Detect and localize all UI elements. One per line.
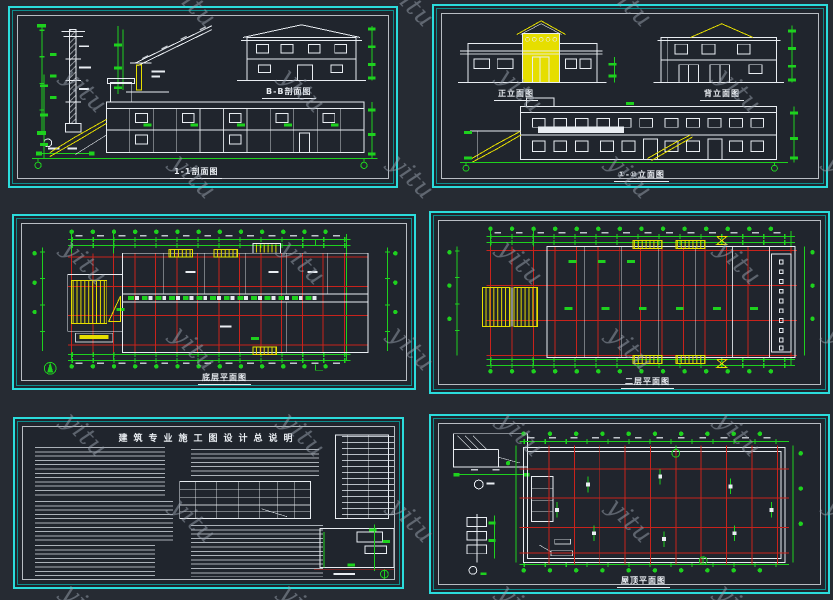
second-plan-drawing-canvas — [439, 221, 820, 384]
second-plan-sheet: 二层平面图 — [438, 220, 821, 385]
ground-plan-drawing-canvas — [22, 224, 406, 380]
ground-plan-title: 底层平面图 — [198, 374, 251, 385]
watermark-text: yitu — [0, 320, 5, 377]
cad-preview-stage: B-B剖面图 1-1剖面图 — [0, 0, 833, 600]
notes-drawing-canvas — [23, 427, 394, 579]
small-section-elevation — [237, 25, 376, 81]
back-elevation-title: 背立面图 — [700, 90, 744, 101]
floor-plan-walls — [547, 246, 795, 357]
ground-plan-sheet: 底层平面图 — [21, 223, 407, 381]
site-section-detail — [314, 524, 394, 579]
door-window-schedule-table — [180, 482, 311, 519]
long-elevation-title: ①-⑩立面图 — [614, 171, 669, 182]
small-section-title: B-B剖面图 — [262, 88, 316, 99]
roof-outline — [524, 447, 785, 562]
gutter-detail-drawing — [467, 514, 495, 575]
roof-plan-title: 屋顶平面图 — [617, 577, 670, 588]
axis-grid-green — [508, 434, 801, 571]
front-elevation-title: 正立面图 — [494, 90, 538, 101]
panel-sections-sheet: B-B剖面图 1-1剖面图 — [8, 6, 398, 188]
roof-plan-sheet: 屋顶平面图 — [438, 423, 821, 585]
panel-notes-sheet: 建筑专业施工图设计总说明 — [13, 417, 404, 589]
long-elevation-drawing — [460, 98, 798, 171]
back-elevation-drawing — [653, 24, 796, 83]
watermark-text: yitu — [0, 0, 5, 33]
long-section-title: 1-1剖面图 — [170, 168, 222, 179]
elevations-sheet: 正立面图 背立面图 ①-⑩立面图 — [441, 13, 819, 179]
second-plan-title: 二层平面图 — [621, 378, 674, 389]
sections-sheet: B-B剖面图 1-1剖面图 — [17, 15, 389, 179]
sections-drawing-canvas — [18, 16, 388, 178]
watermark-text: yitu — [0, 492, 5, 549]
panel-roof-plan: 屋顶平面图 — [429, 414, 830, 594]
drawing-list-table — [336, 435, 389, 519]
roof-grid-red — [520, 445, 789, 564]
roof-drain-symbols — [555, 445, 774, 564]
stair-and-window-symbols — [483, 237, 727, 368]
panel-elevations-sheet: 正立面图 背立面图 ①-⑩立面图 — [432, 4, 828, 188]
roof-plan-drawing-canvas — [439, 424, 820, 584]
panel-ground-floor-plan: 底层平面图 — [12, 214, 416, 390]
watermark-text: yitu — [0, 148, 5, 205]
parapet-detail-drawing — [453, 434, 529, 489]
panel-second-floor-plan: 二层平面图 — [429, 211, 830, 394]
front-elevation-drawing — [458, 21, 616, 83]
notes-sheet: 建筑专业施工图设计总说明 — [22, 426, 395, 580]
